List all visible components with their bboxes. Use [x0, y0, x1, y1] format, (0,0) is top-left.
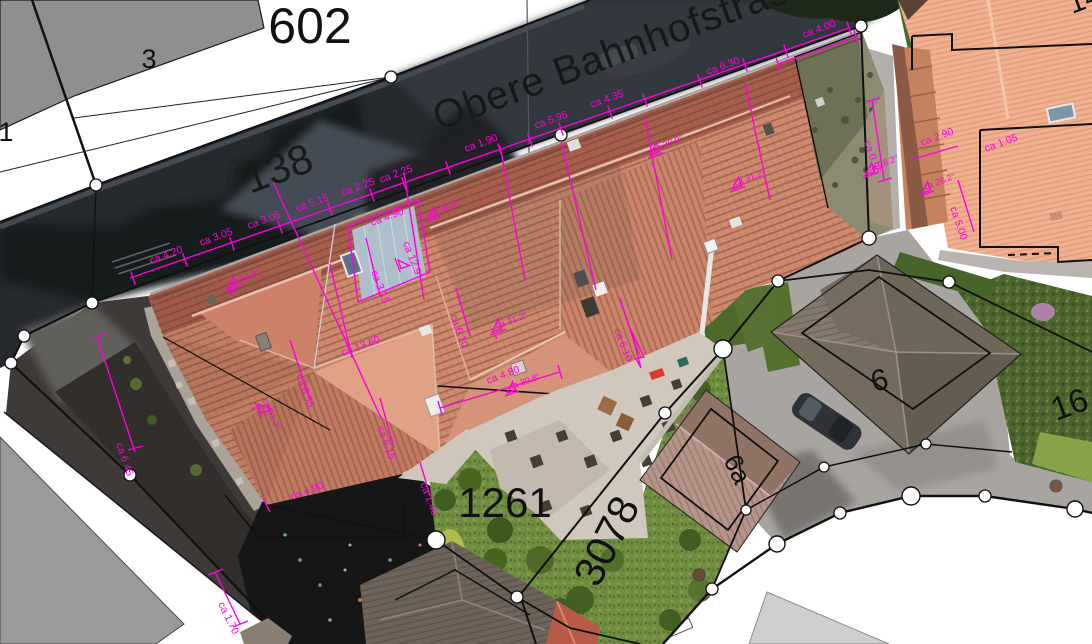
svg-text:1261: 1261 — [458, 479, 551, 526]
svg-text:602: 602 — [268, 0, 351, 54]
svg-text:1: 1 — [0, 117, 14, 147]
svg-text:3: 3 — [141, 44, 156, 74]
